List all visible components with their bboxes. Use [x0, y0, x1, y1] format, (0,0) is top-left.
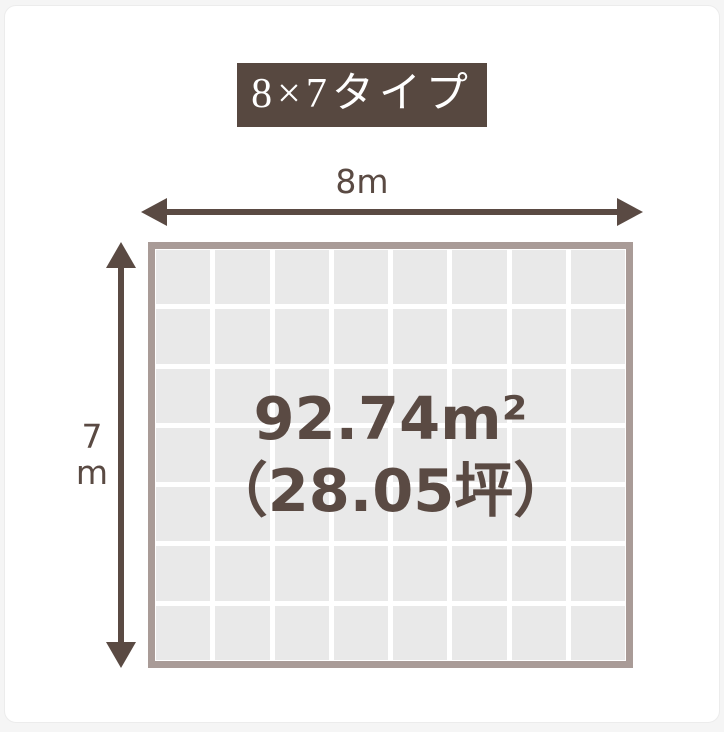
arrow-right-head-icon	[617, 198, 643, 226]
height-label-unit: m	[72, 455, 112, 491]
arrow-shaft	[159, 209, 625, 215]
area-square-meters: 92.74m²	[254, 383, 528, 455]
area-text: 92.74m² （28.05坪）	[148, 242, 633, 668]
width-dimension-label: 8m	[0, 162, 724, 201]
height-label-digit: 7	[72, 419, 112, 455]
type-title-badge: 8×7タイプ	[237, 63, 487, 127]
height-dimension-label: 7 m	[72, 419, 112, 491]
arrow-shaft	[118, 260, 124, 650]
arrow-down-head-icon	[106, 642, 136, 668]
area-tsubo: （28.05坪）	[209, 455, 573, 527]
horizontal-dimension-arrow	[141, 198, 643, 226]
